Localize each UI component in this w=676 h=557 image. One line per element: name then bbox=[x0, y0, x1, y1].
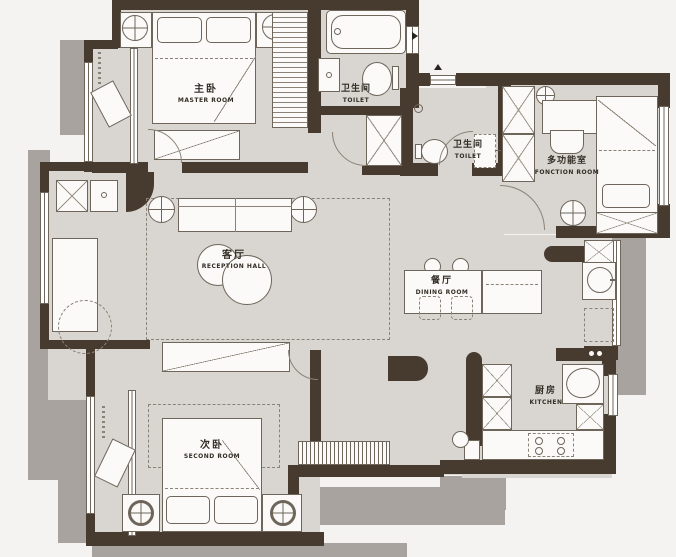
wall-segment bbox=[440, 460, 616, 474]
duct-shaft bbox=[366, 115, 402, 166]
master-lamp-left-icon bbox=[122, 15, 148, 41]
function-pillow bbox=[602, 184, 650, 208]
second-pillow bbox=[214, 496, 258, 524]
room-name-en: FONCTION ROOM bbox=[522, 169, 612, 177]
window bbox=[608, 374, 618, 416]
toilet-tank bbox=[392, 66, 399, 90]
kitchen-cabinet bbox=[576, 404, 604, 430]
second-dresser bbox=[162, 342, 290, 372]
sofa-side-lamp-icon bbox=[148, 196, 175, 223]
floor-drain-icon bbox=[414, 104, 423, 113]
sofa-divider-line bbox=[235, 198, 236, 232]
dining-chair bbox=[451, 296, 473, 320]
room-name-zh: 卫生间 bbox=[328, 84, 384, 95]
island-center-line bbox=[486, 284, 538, 285]
room-name-zh: 次卧 bbox=[160, 440, 264, 451]
bathtub-faucet-icon bbox=[334, 28, 341, 35]
bath-sink-drain-icon bbox=[326, 72, 332, 78]
window bbox=[659, 106, 669, 206]
dining-island bbox=[482, 270, 542, 314]
room-name-zh: 餐厅 bbox=[402, 276, 482, 287]
dining-chair bbox=[419, 296, 441, 320]
burner-icon bbox=[535, 447, 543, 455]
room-name-zh: 卫生间 bbox=[442, 140, 494, 151]
wall-segment bbox=[288, 465, 444, 477]
vanity-drain-icon bbox=[101, 192, 107, 198]
valve-icon bbox=[589, 351, 594, 356]
room-name-zh: 主卧 bbox=[158, 84, 254, 95]
curtain-symbol bbox=[98, 52, 101, 86]
second-pillow bbox=[166, 496, 210, 524]
window-open-arrow-icon bbox=[412, 32, 418, 40]
window bbox=[40, 192, 49, 304]
function-wardrobe bbox=[502, 86, 535, 134]
toilet2-sink-tap-icon bbox=[495, 150, 501, 151]
master-pillow bbox=[157, 17, 202, 43]
room-name-en: SECOND ROOM bbox=[160, 453, 264, 461]
wall-segment bbox=[388, 356, 428, 381]
room-label-kitchen: 厨房 KITCHEN bbox=[508, 386, 584, 407]
function-bed-storage bbox=[596, 212, 658, 234]
room-label-reception: 客厅 RECEPTION HALL bbox=[174, 250, 294, 271]
sofa-side-lamp-icon bbox=[290, 196, 317, 223]
burner-icon bbox=[557, 437, 565, 445]
room-name-en: TOILET bbox=[442, 153, 494, 161]
wall-segment bbox=[658, 73, 670, 108]
plan-shadow bbox=[440, 476, 506, 510]
wall-segment bbox=[602, 414, 616, 464]
toilet-tank bbox=[415, 144, 422, 159]
window bbox=[430, 75, 456, 85]
window bbox=[84, 62, 93, 162]
utility-cabinet bbox=[584, 240, 614, 264]
window bbox=[406, 26, 419, 54]
second-lamp-left-icon bbox=[128, 500, 154, 526]
room-label-bath: 卫生间 TOILET bbox=[328, 84, 384, 105]
bookshelf bbox=[298, 441, 390, 465]
stool bbox=[452, 431, 469, 448]
plant-symbol bbox=[58, 300, 112, 354]
ceiling-lamp-icon bbox=[560, 200, 586, 226]
window bbox=[86, 396, 95, 514]
room-label-dining: 餐厅 DINING ROOM bbox=[402, 276, 482, 297]
room-name-en: TOILET bbox=[328, 97, 384, 105]
wall-segment bbox=[112, 0, 418, 10]
function-bed-sheet-line bbox=[599, 150, 655, 151]
room-label-toilet: 卫生间 TOILET bbox=[442, 140, 494, 161]
room-name-en: KITCHEN bbox=[508, 399, 584, 407]
master-pillow bbox=[206, 17, 251, 43]
wall-segment bbox=[400, 163, 438, 176]
floor-plan-canvas: 主卧 MASTER ROOM 卫生间 TOILET 卫生间 TOILET 多功能… bbox=[0, 0, 676, 557]
wall-segment bbox=[406, 73, 430, 86]
wall-segment bbox=[406, 0, 419, 28]
function-chair bbox=[550, 130, 584, 154]
room-label-function: 多功能室 FONCTION ROOM bbox=[522, 156, 612, 177]
burner-icon bbox=[557, 447, 565, 455]
hall-cabinet bbox=[56, 180, 88, 212]
room-name-zh: 客厅 bbox=[174, 250, 294, 261]
room-name-en: DINING ROOM bbox=[402, 289, 482, 297]
window-open-arrow-icon bbox=[434, 64, 442, 70]
washer-knob-icon bbox=[610, 279, 616, 281]
wall-segment bbox=[544, 246, 584, 262]
wall-segment bbox=[318, 106, 362, 115]
stove bbox=[528, 433, 574, 457]
second-lamp-right-icon bbox=[270, 500, 296, 526]
wall-segment bbox=[466, 352, 482, 446]
room-label-master: 主卧 MASTER ROOM bbox=[158, 84, 254, 105]
wall-segment bbox=[478, 73, 670, 85]
function-blanket-fold bbox=[598, 100, 656, 146]
room-name-en: RECEPTION HALL bbox=[174, 263, 294, 271]
plan-shadow bbox=[58, 385, 88, 543]
window-mullion bbox=[130, 48, 138, 164]
room-name-en: MASTER ROOM bbox=[158, 97, 254, 105]
wall-segment bbox=[182, 162, 308, 173]
master-wardrobe bbox=[272, 12, 308, 128]
bathtub-inner bbox=[331, 15, 401, 49]
room-name-zh: 厨房 bbox=[508, 386, 584, 397]
function-desk bbox=[542, 100, 602, 134]
burner-icon bbox=[535, 437, 543, 445]
utility-cabinet-planned bbox=[584, 308, 614, 342]
curtain-symbol bbox=[102, 406, 105, 440]
room-name-zh: 多功能室 bbox=[522, 156, 612, 167]
valve-icon bbox=[597, 351, 602, 356]
room-label-second: 次卧 SECOND ROOM bbox=[160, 440, 264, 461]
